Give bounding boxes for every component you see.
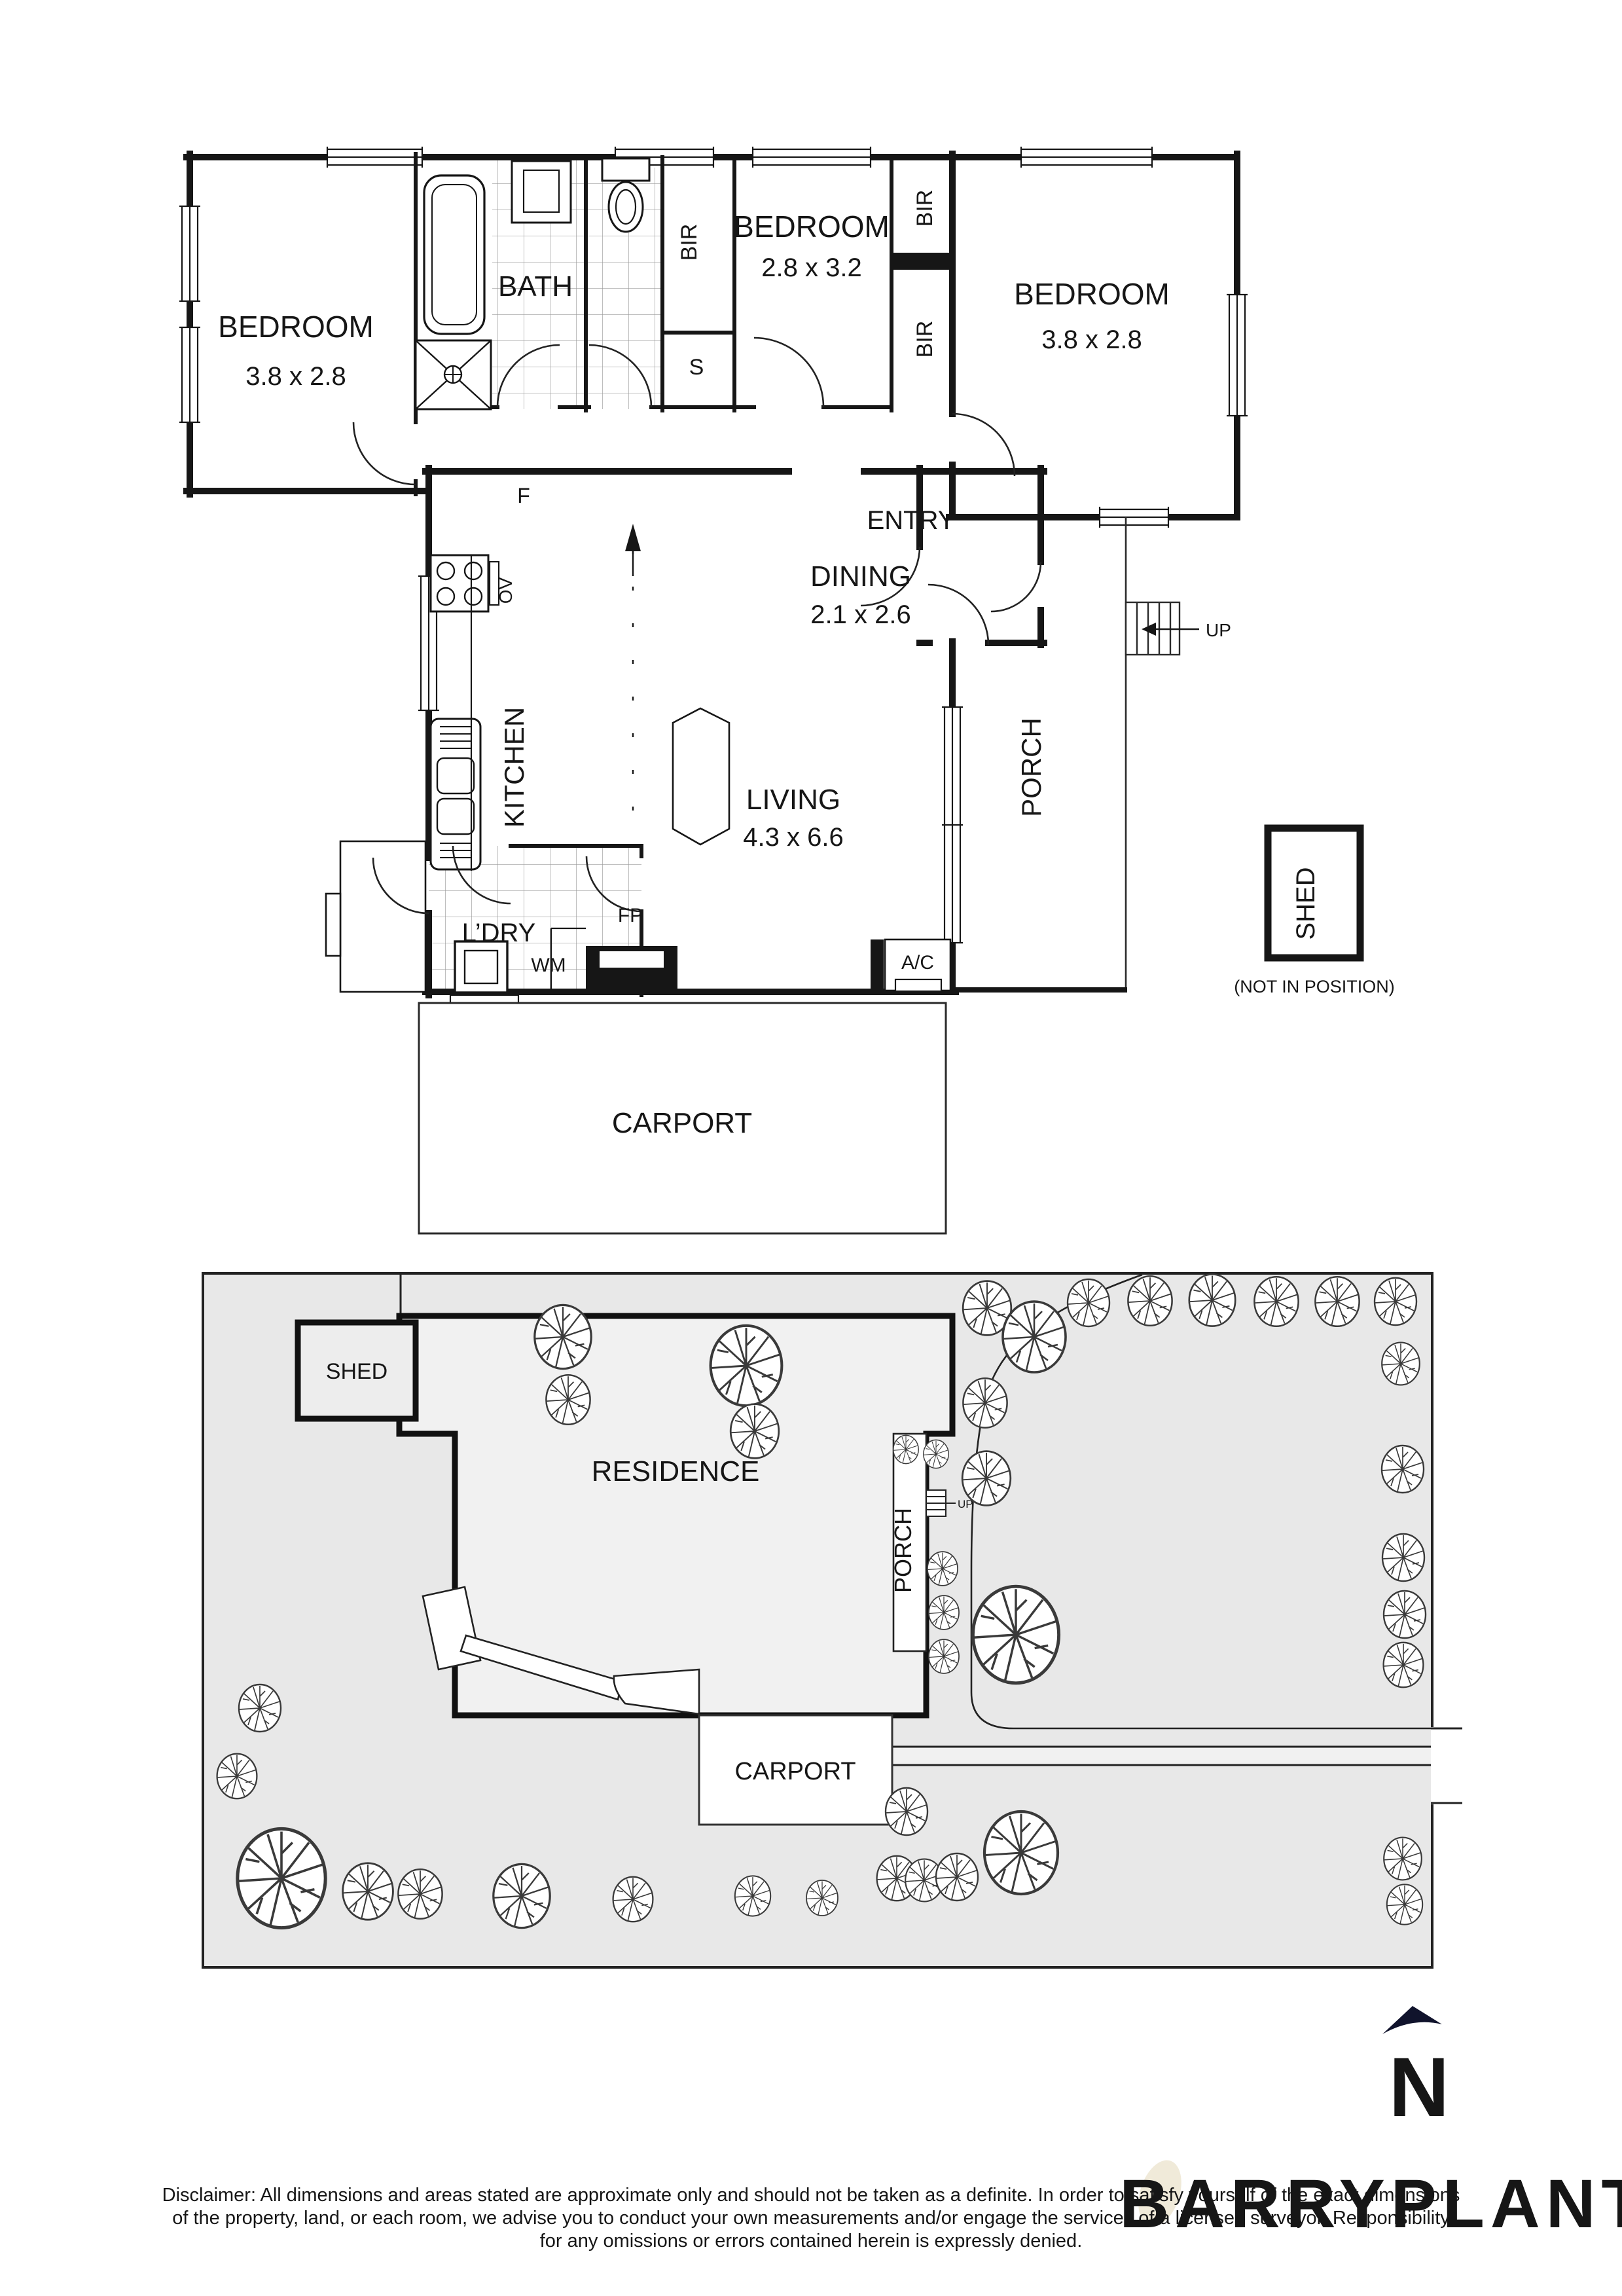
carport-label: CARPORT xyxy=(612,1107,752,1139)
bedroom2-label: BEDROOM xyxy=(734,210,890,244)
tree-icon xyxy=(1315,1277,1359,1326)
washing-machine-inner xyxy=(465,951,497,983)
tree-icon xyxy=(1128,1276,1172,1326)
tree-icon xyxy=(1384,1838,1422,1880)
disclaimer-line1: Disclaimer: All dimensions and areas sta… xyxy=(162,2185,1460,2206)
kitchen-label: KITCHEN xyxy=(499,707,530,828)
north-letter: N xyxy=(1389,2041,1449,2134)
tree-icon xyxy=(886,1788,928,1835)
tree-icon xyxy=(711,1326,782,1406)
window-top-1 xyxy=(327,147,422,168)
tree-icon xyxy=(1382,1343,1420,1385)
window-bed3-east xyxy=(1227,295,1248,416)
sink xyxy=(431,719,480,869)
site-stairs xyxy=(926,1490,946,1516)
tree-icon xyxy=(546,1375,590,1425)
disclaimer-line2: of the property, land, or each room, we … xyxy=(172,2208,1450,2229)
living-dims: 4.3 x 6.6 xyxy=(743,823,843,852)
tree-icon xyxy=(217,1754,257,1798)
dining-label: DINING xyxy=(810,560,911,592)
tree-icon xyxy=(1384,1643,1424,1687)
door-bedroom2 xyxy=(754,338,823,407)
disclaimer-line3: for any omissions or errors contained he… xyxy=(540,2231,1083,2251)
door-front xyxy=(991,562,1041,611)
bathtub-inner xyxy=(432,185,477,325)
store-label: S xyxy=(689,355,704,380)
door-bedroom3 xyxy=(952,414,1015,476)
site-shed-label: SHED xyxy=(326,1359,387,1384)
tree-icon xyxy=(924,1440,948,1468)
window-top-4 xyxy=(1021,147,1152,168)
living-label: LIVING xyxy=(746,784,840,816)
tree-icon xyxy=(343,1863,393,1920)
room-labels: BEDROOM 3.8 x 2.8 BATH BIR S BEDROOM 2.8… xyxy=(218,190,1395,1139)
tree-icon xyxy=(893,1435,918,1463)
bath-label: BATH xyxy=(498,270,573,302)
bir-label-1: BIR xyxy=(677,224,702,261)
bedroom1-label: BEDROOM xyxy=(218,310,374,344)
oven-label: OV xyxy=(496,577,516,604)
wall-black-seg xyxy=(892,253,952,270)
tree-icon xyxy=(1375,1278,1416,1325)
porch-label: PORCH xyxy=(1016,718,1047,817)
window-left-1 xyxy=(179,206,200,301)
floorplan-page: BARRYPLANT xyxy=(0,0,1622,2296)
bir-label-2: BIR xyxy=(912,190,937,227)
divider-arrow xyxy=(625,524,641,841)
tree-icon xyxy=(613,1877,653,1922)
tree-icon xyxy=(238,1829,325,1927)
tree-icon xyxy=(936,1853,978,1901)
tree-icon xyxy=(1387,1884,1422,1924)
shed-note: (NOT IN POSITION) xyxy=(1234,977,1395,996)
tree-icon xyxy=(1254,1277,1298,1326)
tree-icon xyxy=(735,1876,770,1916)
tree-icon xyxy=(973,1586,1058,1683)
site-up-label: UP xyxy=(958,1498,973,1510)
tree-icon xyxy=(984,1812,1058,1894)
kitchen-fixtures xyxy=(431,555,729,871)
vanity-basin xyxy=(524,170,559,212)
entry-label: ENTRY xyxy=(867,506,956,535)
tree-icon xyxy=(1382,1446,1424,1493)
window-top-3 xyxy=(753,147,871,168)
tree-icon xyxy=(962,1451,1011,1506)
bedroom3-dims: 3.8 x 2.8 xyxy=(1041,325,1142,354)
laundry-label: L’DRY xyxy=(462,919,536,947)
dining-dims: 2.1 x 2.6 xyxy=(810,600,910,629)
shed-label: SHED xyxy=(1291,867,1320,939)
door-entry-living xyxy=(928,585,988,645)
washer-label: WM xyxy=(531,955,566,976)
up-label: UP xyxy=(1206,620,1231,640)
tree-icon xyxy=(535,1305,591,1368)
fireplace-slot xyxy=(600,951,664,968)
tree-icon xyxy=(1384,1591,1426,1638)
stove xyxy=(431,555,499,611)
tree-icon xyxy=(494,1864,550,1927)
rear-step xyxy=(326,894,340,956)
tree-icon xyxy=(730,1404,779,1459)
tree-icon xyxy=(1068,1279,1109,1326)
site-residence-label: RESIDENCE xyxy=(592,1455,760,1487)
tree-icon xyxy=(929,1595,959,1630)
fridge-label: F xyxy=(517,484,530,507)
aircon-unit xyxy=(895,979,941,991)
tree-icon xyxy=(928,1552,958,1586)
window-left-2 xyxy=(179,327,200,422)
shower xyxy=(416,340,491,409)
tree-icon xyxy=(1003,1302,1066,1372)
window-bed3-south xyxy=(1100,507,1168,528)
north-arrow-icon xyxy=(1382,2006,1442,2034)
tree-icon xyxy=(806,1880,838,1916)
bir-label-3: BIR xyxy=(912,321,937,358)
site-porch-label: PORCH xyxy=(890,1508,916,1593)
rear-landing xyxy=(340,841,425,992)
kitchen-peninsula xyxy=(673,708,729,845)
bedroom3-label: BEDROOM xyxy=(1014,277,1170,311)
window-living-east xyxy=(942,707,963,943)
tree-icon xyxy=(239,1685,281,1732)
floor-plan: BEDROOM 3.8 x 2.8 BATH BIR S BEDROOM 2.8… xyxy=(179,147,1395,1233)
tree-icon xyxy=(1189,1274,1235,1326)
site-plan: RESIDENCE PORCH UP CARPORT SHED xyxy=(203,1273,1464,1967)
crossover xyxy=(1431,1727,1464,1804)
aircon-label: A/C xyxy=(901,952,934,974)
tree-icon xyxy=(963,1378,1007,1428)
site-carport-label: CARPORT xyxy=(734,1758,856,1785)
door-bedroom1 xyxy=(353,422,416,484)
bedroom2-dims: 2.8 x 3.2 xyxy=(761,253,861,282)
floorplan-canvas: BARRYPLANT xyxy=(0,0,1622,2296)
north-compass: N xyxy=(1382,2006,1449,2134)
bedroom1-dims: 3.8 x 2.8 xyxy=(245,362,346,391)
fireplace-label: FP xyxy=(618,905,643,926)
upper-porch xyxy=(956,517,1199,990)
tree-icon xyxy=(1382,1534,1424,1581)
tree-icon xyxy=(929,1639,959,1673)
tree-icon xyxy=(398,1869,442,1919)
